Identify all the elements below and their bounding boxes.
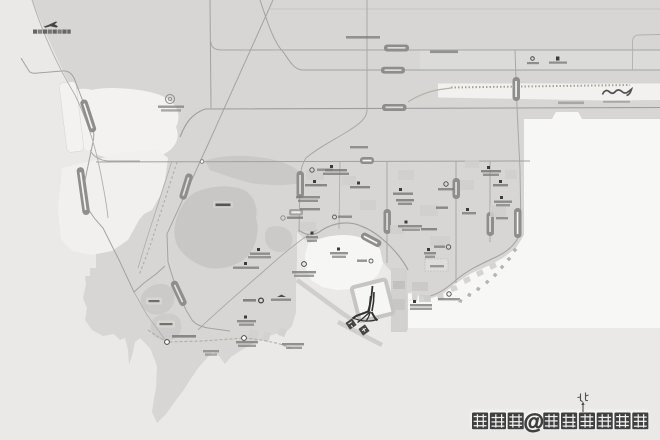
svg-text:@: @ (524, 411, 544, 434)
